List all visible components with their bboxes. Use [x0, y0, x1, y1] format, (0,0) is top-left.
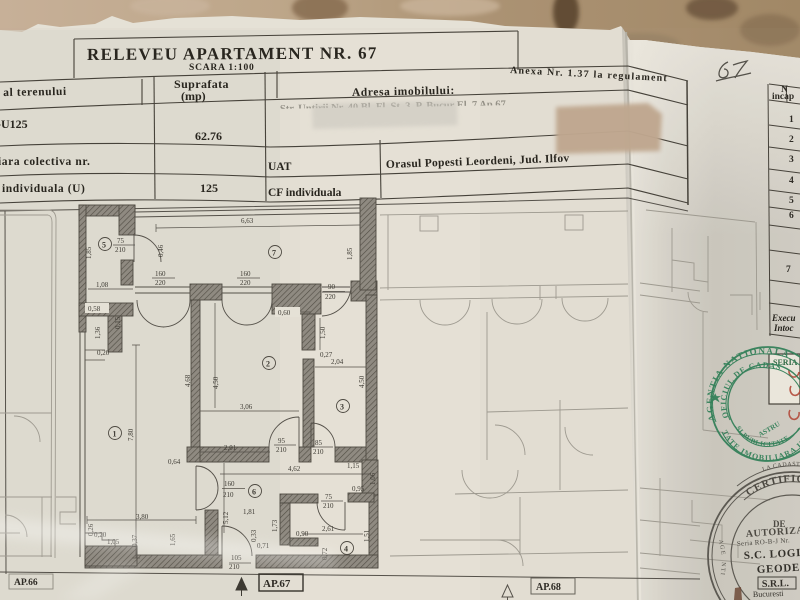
svg-text:AP.67: AP.67 [263, 578, 291, 590]
svg-text:95: 95 [278, 437, 286, 445]
svg-text:85: 85 [315, 439, 323, 447]
svg-text:210: 210 [323, 502, 334, 510]
svg-text:Execu: Execu [771, 313, 796, 323]
svg-text:210: 210 [229, 563, 240, 571]
svg-text:160: 160 [155, 270, 166, 278]
svg-text:SCARA 1:100: SCARA 1:100 [189, 63, 255, 73]
svg-text:0,46: 0,46 [157, 244, 165, 257]
svg-text:0,20: 0,20 [97, 349, 110, 357]
svg-text:160: 160 [240, 270, 251, 278]
svg-text:1,15: 1,15 [347, 462, 360, 470]
svg-text:2: 2 [266, 360, 270, 369]
svg-text:210: 210 [223, 491, 234, 499]
svg-text:220: 220 [325, 293, 336, 301]
svg-text:2,01: 2,01 [224, 444, 237, 452]
svg-text:5,12: 5,12 [222, 511, 230, 524]
svg-text:7,80: 7,80 [127, 428, 135, 441]
svg-text:6: 6 [252, 488, 256, 497]
svg-text:4,62: 4,62 [288, 465, 301, 473]
svg-text:125: 125 [200, 181, 218, 195]
svg-text:1: 1 [789, 115, 794, 125]
svg-text:62.76: 62.76 [195, 129, 222, 143]
svg-text:5: 5 [789, 196, 794, 206]
svg-text:0,64: 0,64 [168, 458, 181, 466]
svg-text:0,33: 0,33 [250, 529, 258, 542]
svg-text:GEODEZ: GEODEZ [757, 561, 800, 576]
svg-text:Intoc: Intoc [773, 323, 794, 333]
svg-text:S.R.L.: S.R.L. [762, 578, 790, 590]
svg-text:4,50: 4,50 [358, 375, 366, 388]
svg-text:i al terenului: i al terenului [0, 86, 67, 99]
svg-text:220: 220 [240, 279, 251, 287]
svg-text:4: 4 [789, 176, 794, 186]
svg-text:1,36: 1,36 [94, 326, 102, 339]
svg-text:4: 4 [344, 545, 348, 554]
svg-text:7: 7 [272, 249, 276, 258]
svg-text:0,95: 0,95 [352, 485, 365, 493]
svg-text:AP.68: AP.68 [536, 582, 561, 593]
svg-text:3,06: 3,06 [240, 403, 253, 411]
svg-text:3: 3 [340, 403, 344, 412]
svg-text:iara colectiva nr.: iara colectiva nr. [0, 156, 90, 168]
svg-text:1-U125: 1-U125 [0, 117, 28, 131]
svg-text:1,08: 1,08 [96, 281, 109, 289]
svg-text:210: 210 [313, 448, 324, 456]
svg-text:0,15: 0,15 [114, 316, 122, 329]
svg-text:0,60: 0,60 [278, 309, 291, 317]
svg-text:CF individuala: CF individuala [268, 187, 342, 199]
svg-text:1,06: 1,06 [369, 472, 377, 485]
svg-text:1: 1 [113, 430, 117, 439]
svg-text:160: 160 [224, 480, 235, 488]
svg-text:90: 90 [328, 283, 336, 291]
svg-text:AP.66: AP.66 [14, 578, 38, 588]
svg-text:Bucuresti: Bucuresti [753, 589, 785, 599]
svg-text:210: 210 [276, 446, 287, 454]
svg-text:Adresa imobilului:: Adresa imobilului: [352, 85, 455, 99]
svg-text:UAT: UAT [268, 161, 292, 173]
svg-text:5: 5 [102, 241, 106, 250]
svg-text:4,50: 4,50 [212, 376, 220, 389]
svg-text:2,04: 2,04 [331, 358, 344, 366]
svg-text:incap: incap [772, 92, 794, 102]
svg-text:75: 75 [117, 237, 125, 245]
svg-text:RELEVEU APARTAMENT NR. 67: RELEVEU APARTAMENT NR. 67 [87, 43, 378, 64]
svg-text:1,85: 1,85 [346, 247, 354, 260]
svg-text:7: 7 [786, 265, 791, 275]
svg-text:3: 3 [789, 155, 794, 165]
svg-text:220: 220 [155, 279, 166, 287]
svg-text:210: 210 [115, 246, 126, 254]
svg-text:4,68: 4,68 [184, 374, 192, 387]
svg-text:2,61: 2,61 [322, 525, 335, 533]
svg-text:1,50: 1,50 [319, 326, 327, 339]
svg-text:0,58: 0,58 [88, 305, 101, 313]
svg-text:3,80: 3,80 [136, 513, 149, 521]
svg-text:75: 75 [325, 493, 333, 501]
svg-text:individuala (U): individuala (U) [2, 183, 85, 195]
svg-text:N T I: N T I [719, 562, 726, 575]
svg-text:6,63: 6,63 [241, 217, 254, 225]
svg-text:1,73: 1,73 [271, 519, 279, 532]
svg-text:2: 2 [789, 135, 794, 145]
svg-text:1,81: 1,81 [243, 508, 256, 516]
svg-text:1,85: 1,85 [85, 246, 93, 259]
svg-text:(mp): (mp) [181, 89, 206, 103]
svg-text:6: 6 [789, 211, 794, 221]
svg-text:1,51: 1,51 [363, 529, 371, 542]
